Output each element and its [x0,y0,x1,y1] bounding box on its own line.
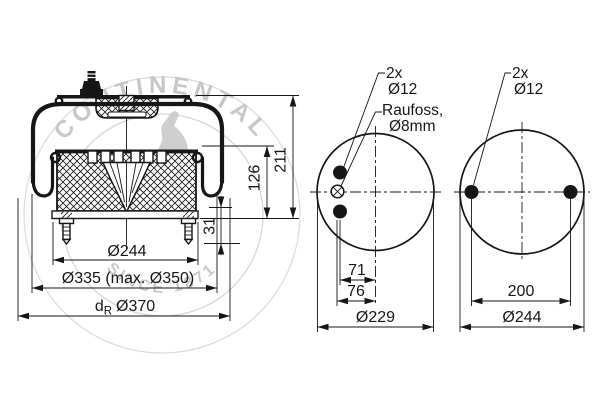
mounting-stud-right [182,219,196,245]
mounting-stud-left [60,219,74,245]
dim-total-height: 211 [273,147,290,173]
bead-clamp-block [96,96,158,119]
bellows-left-lobe [33,158,53,196]
stud-hole-dot [465,185,479,199]
leader-stud-holes [343,73,385,169]
technical-drawing-canvas: CONTINENTAL SINCE 1871 [0,0,600,400]
air-fitting-symbol [331,185,344,198]
leader-stud-holes [474,73,512,185]
dim-stud-projection: 31 [202,217,219,235]
dim-rolling-dia: dRØ370 [95,298,155,318]
bottom-plate-hatch-left [61,212,72,218]
bottom-plate-hatch-right [183,212,194,218]
label-fitting-name: Raufoss, [382,102,443,119]
dim-bottom-plate-dia: Ø244 [502,309,541,326]
dim-piston-dia: Ø244 [107,243,146,260]
label-fitting-dia: Ø8mm [389,118,436,135]
bellows-right-lobe [202,158,222,196]
dim-stud-offset: 71 [348,262,366,279]
label-stud-count: 2x [512,65,529,82]
dim-bellows-dia: Ø335 (max. Ø350) [62,270,195,287]
stud-hole-dot [564,185,578,199]
top-view-plate: 2x Ø12 Raufoss, Ø8mm 71 76 Ø229 [310,65,443,332]
label-stud-dia: Ø12 [514,81,543,98]
dim-fitting-offset: 76 [347,283,365,300]
air-valve-icon [80,71,103,96]
air-spring-drawing: CONTINENTAL SINCE 1871 [0,0,600,400]
dim-stud-spacing: 200 [508,283,535,300]
bottom-plate [52,211,198,219]
label-stud-dia: Ø12 [388,81,417,98]
dim-top-plate-dia: Ø229 [356,309,395,326]
dim-piston-height: 126 [247,165,264,192]
piston [51,151,202,212]
stud-hole-dot [333,205,347,219]
bottom-view-plate: 2x Ø12 200 Ø244 [454,65,590,332]
label-stud-count: 2x [386,65,403,82]
